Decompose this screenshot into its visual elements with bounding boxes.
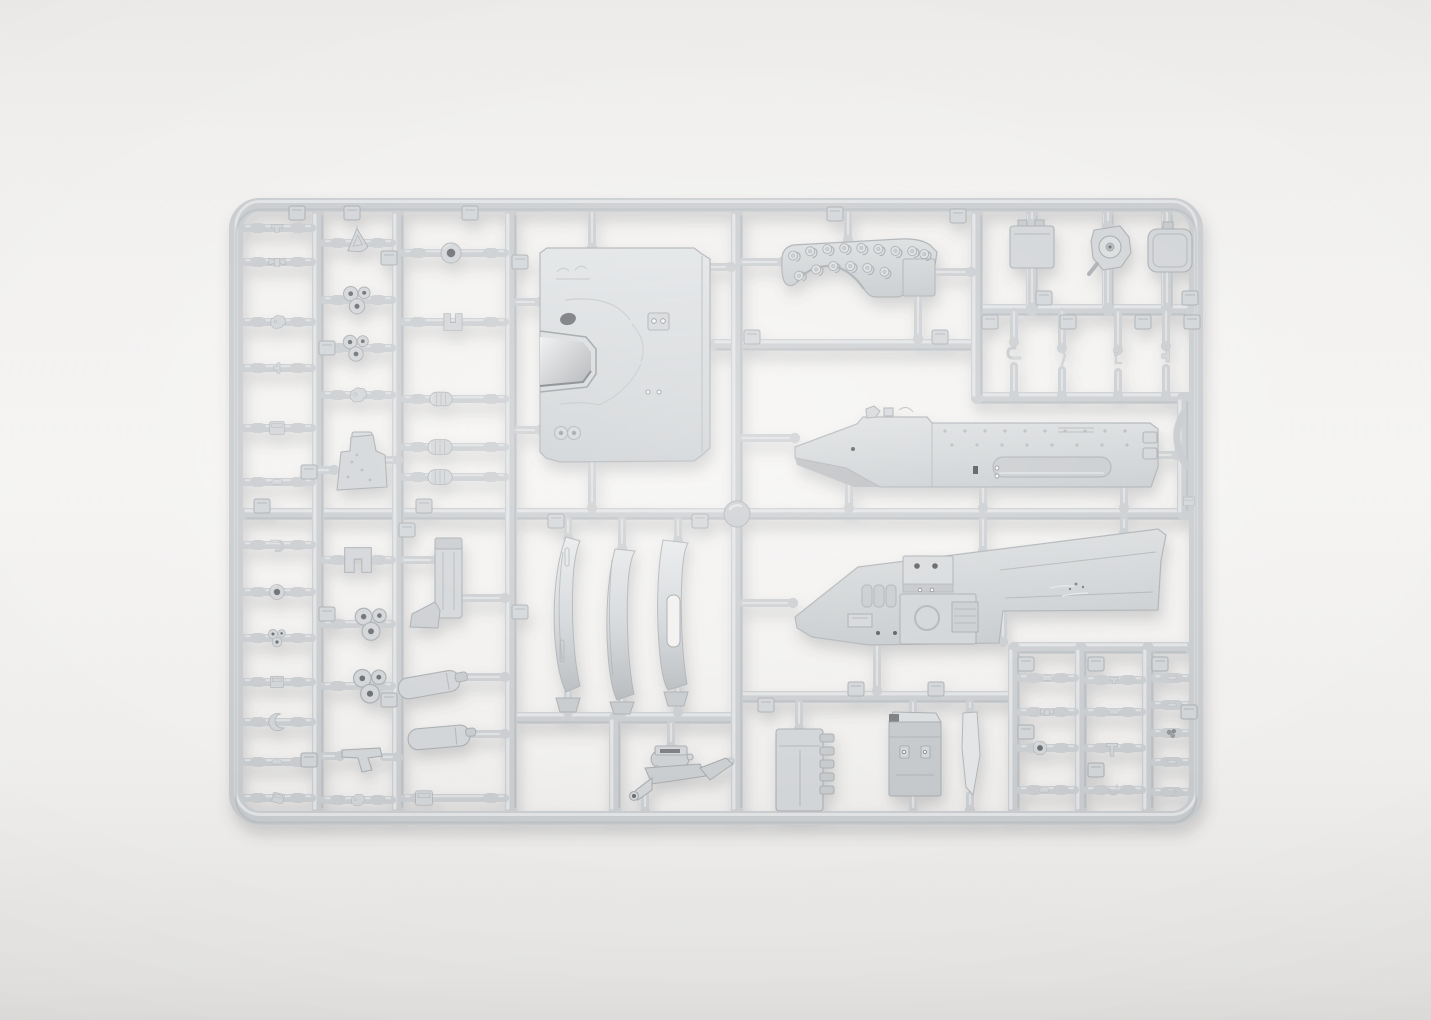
ring-part — [441, 243, 461, 263]
curved-skirt-parts — [554, 537, 688, 714]
capsule-part — [428, 470, 452, 485]
bullet-part — [1168, 760, 1177, 764]
finned-box-part — [776, 729, 834, 811]
square-box-part — [1010, 220, 1054, 268]
sprue — [236, 202, 1200, 823]
box-part — [270, 676, 283, 687]
bullet-part — [1041, 676, 1052, 681]
photo-background — [0, 0, 1431, 1020]
bentpin-part — [1062, 351, 1065, 365]
clip-part — [1162, 350, 1170, 362]
flat-blade-part — [962, 712, 980, 795]
hopper-part — [337, 432, 387, 490]
bullet-part — [1039, 788, 1049, 792]
track-fender-arch-part — [782, 239, 937, 297]
hull-side-panel-part — [540, 248, 710, 462]
sprue-photo — [0, 0, 1431, 1020]
ring-part — [270, 585, 285, 600]
bullet-part — [271, 480, 282, 485]
triangle-part — [348, 225, 368, 251]
bullet-part — [1168, 703, 1177, 707]
pulley-block-part — [1089, 226, 1131, 274]
stowage-box-part — [889, 712, 941, 796]
muffler-part-2 — [407, 724, 477, 751]
air-duct-part — [410, 538, 462, 628]
blob-part — [271, 316, 286, 329]
bullet-part — [1109, 710, 1119, 714]
capsule-part — [430, 392, 453, 406]
bullet-part — [1168, 676, 1177, 680]
capsule-part — [428, 440, 452, 455]
machine-gun-part — [630, 746, 734, 801]
pistol-part — [342, 748, 382, 772]
box-part — [416, 791, 433, 805]
upper-hull-part — [795, 406, 1158, 487]
muffler-part-1 — [397, 668, 470, 701]
blob-part — [350, 388, 367, 402]
box-part — [270, 422, 285, 435]
rounded-box-part — [1148, 222, 1192, 272]
bullet-part — [272, 760, 282, 764]
hook-part — [1008, 348, 1020, 358]
round-gates — [724, 501, 750, 527]
box-part — [1183, 496, 1194, 506]
box-part — [272, 792, 285, 804]
ring-part — [1033, 741, 1047, 755]
blob-part — [351, 794, 365, 806]
